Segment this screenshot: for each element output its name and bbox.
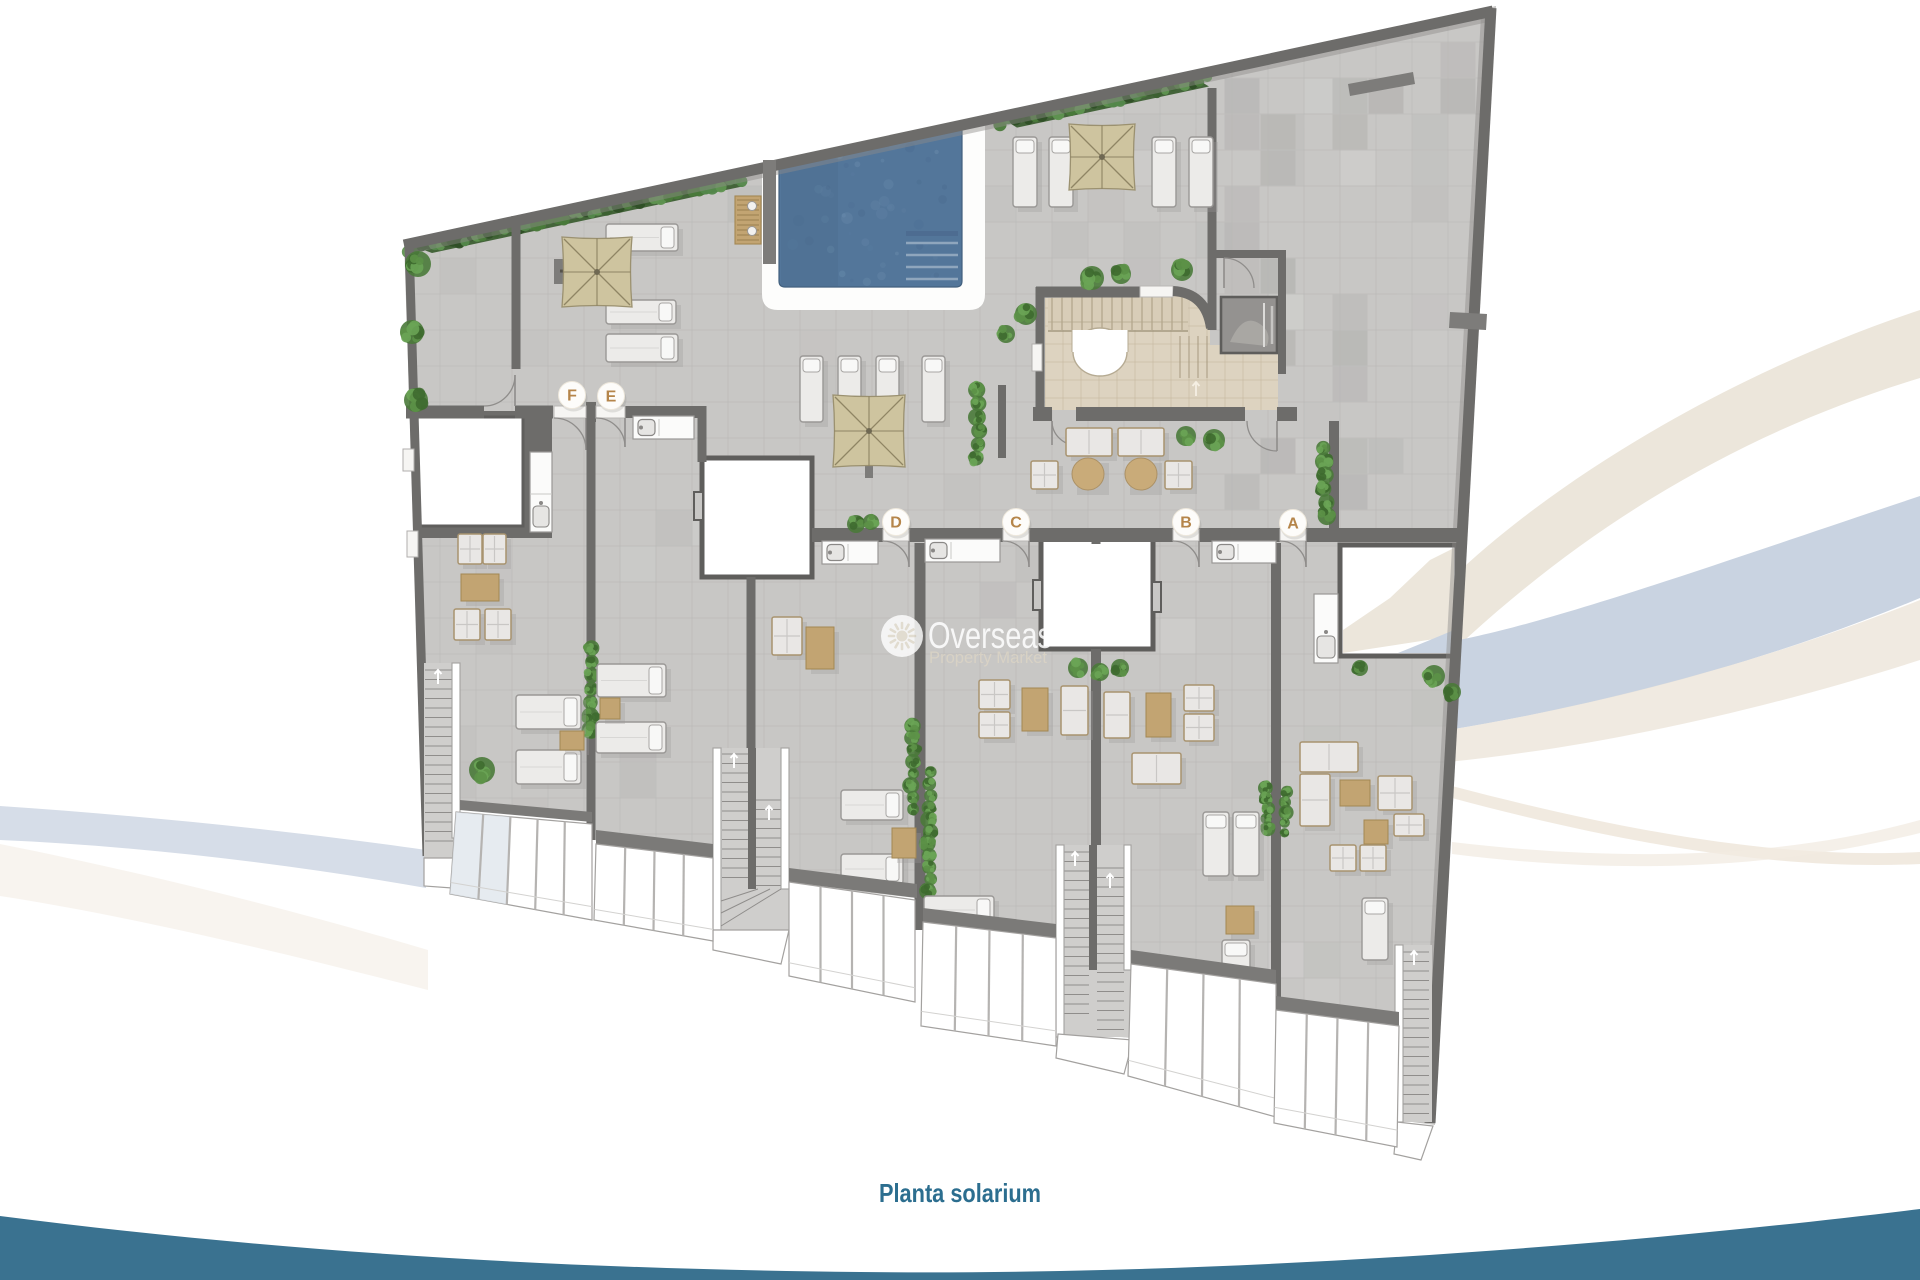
svg-text:B: B bbox=[1180, 515, 1192, 532]
svg-text:D: D bbox=[890, 515, 902, 532]
svg-text:A: A bbox=[1287, 516, 1299, 533]
svg-text:F: F bbox=[567, 388, 577, 405]
svg-text:E: E bbox=[606, 389, 617, 406]
svg-text:C: C bbox=[1010, 515, 1022, 532]
svg-text:Planta solarium: Planta solarium bbox=[879, 1178, 1041, 1208]
svg-text:Property Market: Property Market bbox=[929, 648, 1047, 667]
